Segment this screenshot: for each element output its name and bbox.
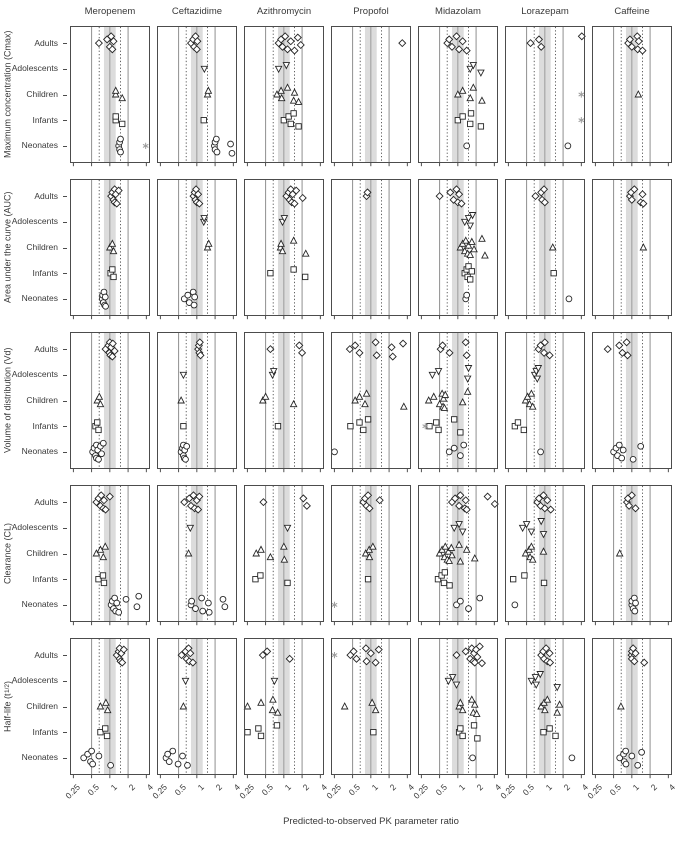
x-tick-label: 0.25 [325,782,344,801]
y-axis-tick [63,401,67,402]
x-tick-label: 0.5 [520,782,535,797]
children-marker [96,393,102,399]
panel-ceftazidime-cmax [157,26,237,163]
y-axis-tick [63,758,67,759]
children-marker [97,703,103,709]
neonates-marker [200,608,206,614]
neonates-marker [205,600,211,606]
asterisk-marker [579,91,584,97]
neonates-marker [100,440,106,446]
neonates-marker [451,445,457,451]
infants-marker [515,420,520,425]
children-marker [291,401,297,407]
y-axis-tick [63,95,67,96]
children-marker [469,696,475,702]
panel-azithromycin-auc [244,179,324,316]
neonates-marker [629,753,635,759]
x-tick-label: 2 [562,782,572,792]
y-axis-tick [63,43,67,44]
adults-marker [484,493,491,500]
children-marker [554,709,560,715]
infants-marker [103,726,108,731]
panel-caffeine-auc [592,179,672,316]
infants-marker [553,733,558,738]
neonates-marker [189,598,195,604]
y-axis-label-infants: Infants [0,116,58,125]
adults-marker [639,191,646,198]
infants-marker [111,274,116,279]
y-axis-label-children: Children [0,243,58,252]
panel-azithromycin-cl [244,485,324,622]
infants-marker [201,117,206,122]
panel-meropenem-cl [70,485,150,622]
x-tick-label: 1 [630,782,640,792]
children-marker [270,696,276,702]
adults-marker [532,193,539,200]
panel-lorazepam-cmax [505,26,585,163]
infants-marker [468,277,473,282]
infants-marker [100,573,105,578]
panel-midazolam-t12 [418,638,498,775]
neonates-marker [630,456,636,462]
children-marker [470,84,476,90]
children-marker [291,97,297,103]
panel-lorazepam-t12 [505,638,585,775]
children-marker [267,554,273,560]
infants-marker [460,114,465,119]
infants-marker [275,423,280,428]
neonates-marker [446,449,452,455]
adults-marker [604,346,611,353]
x-tick-label: 0.25 [499,782,518,801]
adults-marker [291,47,298,54]
neonates-marker [99,451,105,457]
adults-marker [303,502,310,509]
neonates-marker [89,748,95,754]
y-axis-label-children: Children [0,396,58,405]
adolescents-marker [180,372,186,378]
infants-marker [551,270,556,275]
children-marker [469,239,475,245]
children-marker [295,99,301,105]
adults-marker [616,342,623,349]
infants-marker [521,427,526,432]
infants-marker [104,733,109,738]
y-axis-tick [63,375,67,376]
adolescents-marker [445,678,451,684]
y-axis-tick [63,528,67,529]
x-tick-label: 2 [388,782,398,792]
y-axis-label-children: Children [0,90,58,99]
children-marker [479,97,485,103]
panel-propofol-cmax [331,26,411,163]
y-axis-tick [63,273,67,274]
x-tick-label: 2 [214,782,224,792]
x-axis-title: Predicted-to-observed PK parameter ratio [70,816,672,827]
infants-marker [361,427,366,432]
y-axis-label-adults: Adults [0,651,58,660]
adults-marker [299,195,306,202]
neonates-marker [566,296,572,302]
panel-caffeine-t12 [592,638,672,775]
x-tick-label: 0.25 [151,782,170,801]
panel-propofol-auc [331,179,411,316]
y-axis-label-infants: Infants [0,728,58,737]
asterisk-marker [332,602,337,608]
children-marker [356,393,362,399]
infants-marker [113,114,118,119]
neonates-marker [228,141,234,147]
neonates-marker [184,443,190,449]
neonates-marker [175,761,181,767]
panel-meropenem-vd [70,332,150,469]
children-marker [291,237,297,243]
children-marker [401,403,407,409]
neonates-marker [623,761,629,767]
panel-midazolam-vd [418,332,498,469]
infants-marker [475,736,480,741]
panel-ceftazidime-auc [157,179,237,316]
neonates-marker [102,294,108,300]
y-axis-label-adults: Adults [0,498,58,507]
y-axis-tick [63,120,67,121]
panel-ceftazidime-t12 [157,638,237,775]
neonates-marker [569,755,575,761]
asterisk-marker [579,117,584,123]
x-tick-label: 4 [667,782,676,792]
infants-marker [468,111,473,116]
children-marker [482,252,488,258]
panel-ceftazidime-cl [157,485,237,622]
adults-marker [299,349,306,356]
neonates-marker [457,598,463,604]
neonates-marker [118,149,124,155]
y-axis-tick [63,732,67,733]
infants-marker [101,580,106,585]
neonates-marker [466,606,472,612]
panel-propofol-t12 [331,638,411,775]
adults-marker [353,655,360,662]
neonates-marker [90,761,96,767]
infants-marker [256,726,261,731]
infants-marker [541,729,546,734]
infants-marker [274,723,279,728]
children-marker [119,95,125,101]
infants-marker [458,430,463,435]
infants-marker [181,423,186,428]
adults-marker [96,40,103,47]
panel-caffeine-cmax [592,26,672,163]
infants-marker [365,576,370,581]
infants-marker [442,570,447,575]
y-axis-tick [63,681,67,682]
y-axis-tick [63,196,67,197]
neonates-marker [192,294,198,300]
y-axis-tick [63,299,67,300]
neonates-marker [136,593,142,599]
y-axis-tick [63,605,67,606]
infants-marker [288,121,293,126]
neonates-marker [538,449,544,455]
adolescents-marker [429,372,435,378]
neonates-marker [635,762,641,768]
x-tick-label: 0.25 [64,782,83,801]
children-marker [479,235,485,241]
adults-marker [463,352,470,359]
neonates-marker [166,759,172,765]
y-axis-label-adults: Adults [0,192,58,201]
adults-marker [300,495,307,502]
y-axis-label-children: Children [0,549,58,558]
neonates-marker [180,753,186,759]
neonates-marker [213,136,219,142]
neonates-marker [185,762,191,768]
infants-marker [460,733,465,738]
x-tick-label: 0.5 [172,782,187,797]
neonates-marker [464,292,470,298]
y-axis-label-adolescents: Adolescents [0,64,58,73]
infants-marker [291,111,296,116]
panel-lorazepam-vd [505,332,585,469]
adults-marker [400,340,407,347]
children-marker [258,699,264,705]
infants-marker [258,733,263,738]
x-tick-label: 1 [282,782,292,792]
y-axis-label-neonates: Neonates [0,294,58,303]
x-tick-label: 2 [475,782,485,792]
neonates-marker [461,442,467,448]
adults-marker [463,47,470,54]
x-tick-label: 2 [301,782,311,792]
infants-marker [436,427,441,432]
infants-marker [522,573,527,578]
x-tick-label: 1 [108,782,118,792]
x-tick-label: 0.25 [238,782,257,801]
adults-marker [641,659,648,666]
neonates-marker [332,449,338,455]
neonates-marker [114,600,120,606]
neonates-marker [632,608,638,614]
neonates-marker [616,442,622,448]
children-marker [291,89,297,95]
infants-marker [478,124,483,129]
neonates-marker [229,150,235,156]
children-marker [205,87,211,93]
infants-marker [434,420,439,425]
panel-lorazepam-cl [505,485,585,622]
adults-marker [294,34,301,41]
infants-marker [285,580,290,585]
neonates-marker [512,602,518,608]
infants-marker [441,580,446,585]
asterisk-marker [143,143,148,149]
children-marker [269,707,275,713]
neonates-marker [103,303,109,309]
adolescents-marker [271,678,277,684]
y-axis-label-neonates: Neonates [0,447,58,456]
children-marker [263,393,269,399]
infants-marker [357,420,362,425]
y-axis-tick [63,502,67,503]
infants-marker [110,267,115,272]
neonates-marker [214,149,220,155]
panel-caffeine-cl [592,485,672,622]
children-marker [206,240,212,246]
x-tick-label: 0.5 [259,782,274,797]
y-axis-label-adults: Adults [0,345,58,354]
neonates-marker [457,453,463,459]
y-axis-tick [63,248,67,249]
x-tick-label: 2 [127,782,137,792]
panel-caffeine-vd [592,332,672,469]
y-axis-label-adolescents: Adolescents [0,217,58,226]
x-tick-label: 1 [195,782,205,792]
infants-marker [296,124,301,129]
infants-marker [268,270,273,275]
neonates-marker [183,456,189,462]
facet-column-title-midazolam: Midazolam [418,6,498,17]
infants-marker [365,417,370,422]
children-marker [617,550,623,556]
x-tick-label: 0.25 [586,782,605,801]
infants-marker [96,427,101,432]
neonates-marker [222,604,228,610]
y-axis-tick [63,349,67,350]
adults-marker [267,346,274,353]
x-tick-label: 2 [649,782,659,792]
y-axis-tick [63,452,67,453]
y-axis-label-adolescents: Adolescents [0,523,58,532]
y-axis-tick [63,426,67,427]
infants-marker [458,726,463,731]
y-axis-tick [63,146,67,147]
y-axis-tick [63,655,67,656]
children-marker [244,703,250,709]
infants-marker [468,121,473,126]
panel-midazolam-cmax [418,26,498,163]
x-tick-label: 0.25 [412,782,431,801]
adolescents-marker [182,678,188,684]
infants-marker [451,417,456,422]
infants-marker [95,420,100,425]
neonates-marker [96,456,102,462]
x-tick-label: 1 [543,782,553,792]
y-axis-tick [63,554,67,555]
y-axis-label-adolescents: Adolescents [0,370,58,379]
y-axis-label-neonates: Neonates [0,753,58,762]
infants-marker [547,726,552,731]
neonates-marker [118,136,124,142]
y-axis-tick [63,579,67,580]
adolescents-marker [435,369,441,375]
panel-meropenem-t12 [70,638,150,775]
adults-marker [389,353,396,360]
adults-marker [399,40,406,47]
infants-marker [291,267,296,272]
children-marker [342,703,348,709]
panel-ceftazidime-vd [157,332,237,469]
infants-marker [302,274,307,279]
y-axis-label-adolescents: Adolescents [0,676,58,685]
children-marker [258,546,264,552]
neonates-marker [206,609,212,615]
children-marker [180,703,186,709]
infants-marker [245,729,250,734]
panel-meropenem-auc [70,179,150,316]
adolescents-marker [528,529,534,535]
neonates-marker [116,609,122,615]
adults-marker [297,42,304,49]
neonates-marker [96,753,102,759]
infants-marker [510,576,515,581]
neonates-marker [565,143,571,149]
x-tick-label: 0.5 [85,782,100,797]
neonates-marker [185,292,191,298]
neonates-marker [170,748,176,754]
children-marker [465,388,471,394]
x-tick-label: 0.5 [346,782,361,797]
neonates-marker [134,604,140,610]
adults-marker [356,349,363,356]
adolescents-marker [478,70,484,76]
neonates-marker [639,749,645,755]
x-tick-label: 0.5 [607,782,622,797]
infants-marker [471,723,476,728]
facet-column-title-propofol: Propofol [331,6,411,17]
facet-column-title-ceftazidime: Ceftazidime [157,6,237,17]
y-axis-label-infants: Infants [0,269,58,278]
facet-column-title-azithromycin: Azithromycin [244,6,324,17]
y-axis-label-infants: Infants [0,575,58,584]
adults-marker [527,40,534,47]
children-marker [303,250,309,256]
neonates-marker [470,755,476,761]
x-tick-label: 0.5 [433,782,448,797]
facet-column-title-meropenem: Meropenem [70,6,150,17]
neonates-marker [477,595,483,601]
y-axis-label-neonates: Neonates [0,141,58,150]
neonates-marker [193,606,199,612]
panel-azithromycin-vd [244,332,324,469]
neonates-marker [619,455,625,461]
y-axis-tick [63,222,67,223]
x-tick-label: 1 [456,782,466,792]
y-axis-label-adults: Adults [0,39,58,48]
neonates-marker [623,748,629,754]
infants-marker [447,583,452,588]
neonates-marker [633,600,639,606]
panel-propofol-vd [331,332,411,469]
infants-marker [120,121,125,126]
children-marker [472,555,478,561]
panel-azithromycin-t12 [244,638,324,775]
neonates-marker [199,595,205,601]
panel-midazolam-cl [418,485,498,622]
adolescents-marker [554,685,560,691]
infants-marker [258,573,263,578]
pk-ratio-facet-figure: MeropenemCeftazidimeAzithromycinPropofol… [0,0,676,842]
asterisk-marker [332,652,337,658]
infants-marker [469,269,474,274]
adolescents-marker [465,365,471,371]
infants-marker [348,423,353,428]
children-marker [467,95,473,101]
facet-column-title-caffeine: Caffeine [592,6,672,17]
y-axis-tick [63,69,67,70]
adolescents-marker [467,223,473,229]
neonates-marker [638,443,644,449]
y-axis-label-children: Children [0,702,58,711]
